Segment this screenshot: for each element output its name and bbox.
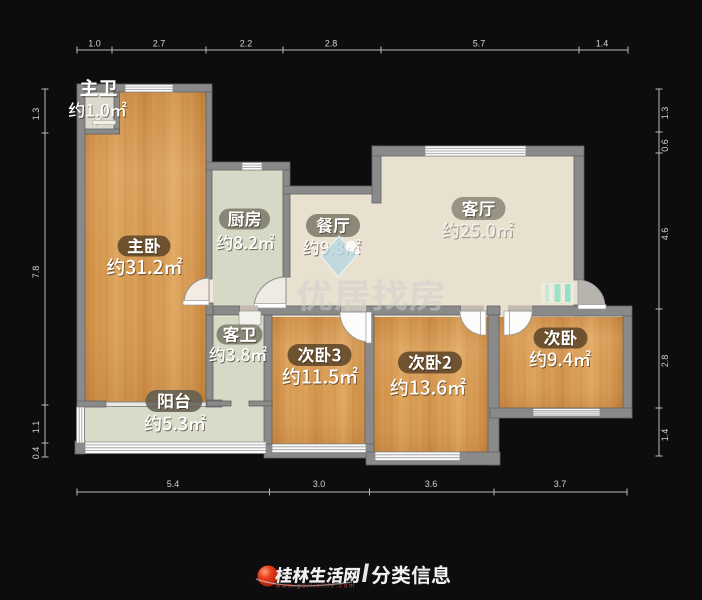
svg-text:5.7: 5.7 [473, 38, 486, 48]
svg-text:1.3: 1.3 [660, 107, 670, 120]
svg-text:2.8: 2.8 [660, 355, 670, 368]
svg-text:1.3: 1.3 [31, 108, 41, 121]
svg-text:1.4: 1.4 [660, 429, 670, 442]
svg-text:3.6: 3.6 [425, 479, 438, 489]
svg-text:2.8: 2.8 [325, 38, 338, 48]
svg-text:3.0: 3.0 [313, 479, 326, 489]
svg-text:5.4: 5.4 [167, 479, 180, 489]
svg-text:1.4: 1.4 [596, 38, 609, 48]
svg-text:0.6: 0.6 [660, 139, 670, 152]
svg-text:2.2: 2.2 [240, 38, 253, 48]
svg-text:0.4: 0.4 [31, 447, 41, 460]
svg-text:1.0: 1.0 [88, 38, 101, 48]
svg-text:7.8: 7.8 [31, 266, 41, 279]
svg-text:3.7: 3.7 [554, 479, 567, 489]
svg-text:4.6: 4.6 [660, 228, 670, 241]
svg-text:2.7: 2.7 [153, 38, 166, 48]
svg-text:1.1: 1.1 [31, 421, 41, 434]
